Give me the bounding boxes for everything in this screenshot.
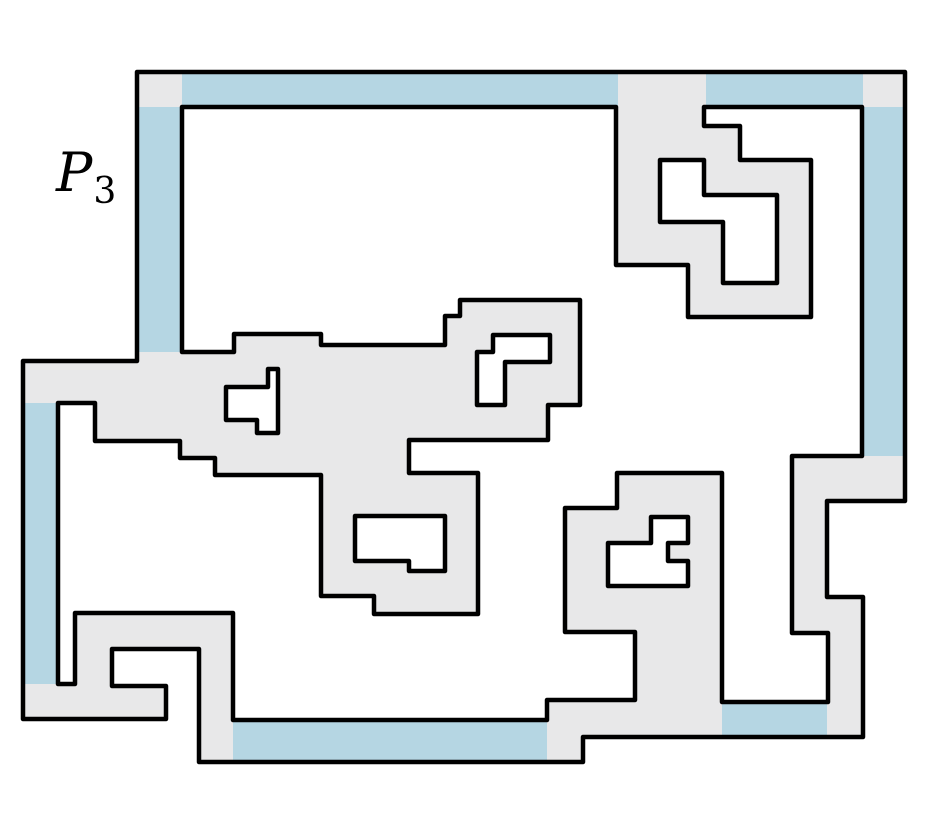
- polygon-label: P3: [56, 146, 116, 210]
- highlighted-edge-left-edge-lower-segment: [23, 403, 58, 684]
- highlighted-edge-left-edge-upper-segment: [137, 107, 182, 352]
- polygon-figure-svg: [0, 0, 936, 820]
- highlighted-edge-bottom-edge-segment: [233, 721, 547, 762]
- highlighted-edge-right-edge-segment: [862, 107, 905, 456]
- highlighted-edge-top-edge-left-segment: [182, 72, 618, 107]
- highlighted-edge-top-edge-right-segment: [706, 72, 863, 107]
- diagram-canvas: P3: [0, 0, 936, 820]
- polygon-label-subscript: 3: [93, 171, 116, 212]
- highlighted-edge-bottom-right-edge-segment: [722, 702, 827, 737]
- polygon-label-main: P: [56, 141, 92, 204]
